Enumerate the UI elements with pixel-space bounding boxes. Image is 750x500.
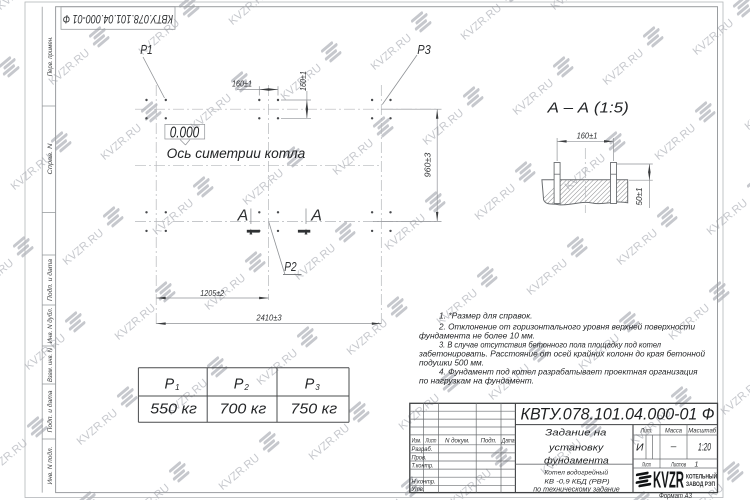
svg-text:1: 1 [175, 383, 179, 392]
svg-text:Подп.: Подп. [481, 437, 497, 445]
svg-text:Разраб.: Разраб. [412, 445, 433, 453]
svg-text:Р2: Р2 [284, 260, 296, 274]
svg-text:Н.контр.: Н.контр. [412, 479, 436, 486]
svg-text:960±3: 960±3 [422, 152, 432, 177]
svg-text:Взам. инв. N: Взам. инв. N [47, 348, 54, 382]
svg-text:Масса: Масса [665, 428, 682, 435]
svg-text:750 кг: 750 кг [290, 401, 337, 418]
svg-text:1: 1 [695, 461, 699, 468]
svg-text:550 кг: 550 кг [150, 401, 197, 418]
svg-text:Р: Р [164, 377, 174, 393]
svg-text:Задание на: Задание на [545, 428, 606, 438]
svg-text:Котел водогрейный: Котел водогрейный [544, 469, 608, 477]
svg-text:Р1: Р1 [140, 43, 152, 57]
svg-text:Лист: Лист [641, 461, 651, 468]
svg-text:фундамента не более 10 мм.: фундамента не более 10 мм. [419, 331, 535, 340]
svg-text:А – А (1:5): А – А (1:5) [546, 100, 628, 116]
svg-text:Справ. N: Справ. N [47, 143, 54, 174]
svg-text:Лист: Лист [425, 438, 437, 445]
svg-text:А: А [310, 208, 322, 225]
svg-text:Р3: Р3 [417, 43, 431, 57]
svg-text:50±1: 50±1 [634, 188, 644, 206]
svg-text:700 кг: 700 кг [220, 401, 267, 418]
svg-text:Подп. и дата: Подп. и дата [46, 259, 54, 301]
svg-text:установку: установку [548, 442, 605, 452]
svg-text:Ось симетрии котла: Ось симетрии котла [167, 146, 306, 161]
svg-text:забетонировать. Расстояние от: забетонировать. Расстояние от осей крайн… [418, 349, 705, 358]
svg-text:ЗАВОД РЭП: ЗАВОД РЭП [686, 482, 715, 488]
svg-text:Дата: Дата [501, 438, 515, 445]
svg-text:1:20: 1:20 [698, 442, 712, 454]
svg-text:КВТУ.078.101.04.000-01 Ф: КВТУ.078.101.04.000-01 Ф [63, 12, 173, 24]
svg-text:Изм.: Изм. [412, 438, 422, 445]
svg-text:3. В случае отсутствия бетонн: 3. В случае отсутствия бетонного пола пл… [439, 340, 661, 349]
svg-text:КВТУ.078.101.04.000-01 Ф: КВТУ.078.101.04.000-01 Ф [521, 405, 715, 424]
svg-text:2: 2 [243, 383, 249, 392]
svg-text:Перв. примен.: Перв. примен. [47, 36, 54, 76]
svg-text:А: А [237, 208, 249, 225]
svg-text:160±1: 160±1 [298, 71, 308, 91]
svg-text:4. Фундамент под котел разраб: 4. Фундамент под котел разрабатывает про… [439, 367, 698, 376]
svg-text:Пров.: Пров. [412, 454, 427, 461]
svg-text:1205±2: 1205±2 [200, 288, 224, 298]
svg-text:160±1: 160±1 [577, 130, 598, 140]
svg-text:–: – [670, 442, 677, 453]
svg-text:KVZR: KVZR [653, 467, 684, 493]
svg-text:1. *Размер для справок.: 1. *Размер для справок. [439, 311, 533, 320]
svg-text:Инв. N подл.: Инв. N подл. [46, 447, 54, 485]
svg-text:Р: Р [234, 377, 244, 393]
svg-text:2. Отклонение от горизонтальн: 2. Отклонение от горизонтального уровня … [438, 323, 695, 332]
svg-text:Т.контр.: Т.контр. [412, 462, 434, 469]
svg-text:Лит.: Лит. [640, 428, 653, 435]
svg-text:по техническому задание: по техническому задание [533, 485, 620, 493]
svg-text:Подп. и дата: Подп. и дата [46, 390, 54, 432]
svg-text:по нагрузкам на фундамент.: по нагрузкам на фундамент. [419, 376, 534, 385]
svg-text:Р: Р [305, 377, 315, 393]
svg-text:Утв.: Утв. [411, 486, 425, 493]
svg-text:И: И [636, 441, 644, 453]
svg-text:подушки 500 мм.: подушки 500 мм. [419, 358, 484, 367]
svg-text:Масштаб: Масштаб [688, 427, 716, 435]
svg-text:КВ -0,9 КБД (РВР): КВ -0,9 КБД (РВР) [544, 479, 609, 486]
svg-text:2410±3: 2410±3 [255, 313, 281, 323]
svg-text:0.000: 0.000 [170, 124, 200, 141]
svg-text:N докум.: N докум. [445, 437, 470, 445]
svg-text:3: 3 [315, 383, 320, 392]
svg-text:Инв. N дубл.: Инв. N дубл. [46, 308, 54, 344]
svg-text:160±1: 160±1 [232, 78, 252, 88]
svg-text:КОТЕЛЬНЫЙ: КОТЕЛЬНЫЙ [686, 473, 717, 481]
svg-text:Формат А3: Формат А3 [659, 491, 693, 500]
